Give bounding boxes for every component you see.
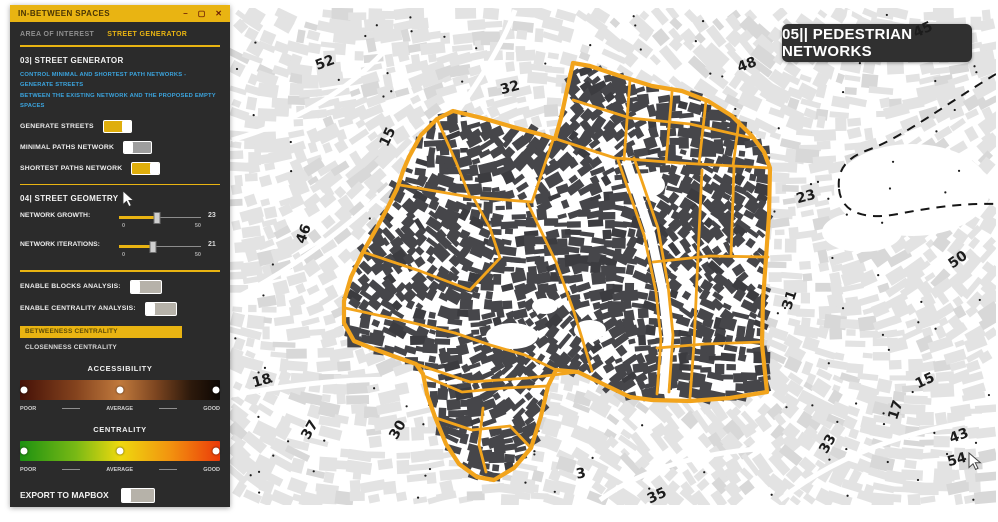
dash-line: [159, 469, 177, 470]
maximize-button[interactable]: ▢: [198, 10, 206, 18]
accessibility-legend-labels: POOR AVERAGE GOOD: [20, 406, 220, 412]
label-poor: POOR: [20, 467, 36, 473]
label-good: GOOD: [203, 467, 220, 473]
section-divider: [20, 45, 220, 47]
section-divider: [20, 184, 220, 186]
label-average: AVERAGE: [106, 406, 133, 412]
accessibility-gradient-bar[interactable]: [20, 380, 220, 400]
blocks-analysis-row: ENABLE BLOCKS ANALYSIS:: [20, 280, 220, 294]
network-growth-label: NETWORK GROWTH:: [20, 212, 90, 219]
toggle-knob: [131, 281, 140, 293]
gradient-handle-left[interactable]: [21, 386, 28, 393]
network-growth-row: NETWORK GROWTH: 0 50 23: [20, 212, 220, 232]
dash-line: [159, 408, 177, 409]
gradient-handle-left[interactable]: [21, 447, 28, 454]
minimal-paths-row: MINIMAL PATHS NETWORK: [20, 141, 220, 154]
toggle-knob: [122, 121, 131, 132]
city-map-canvas: [230, 8, 996, 505]
shortest-paths-toggle[interactable]: [131, 162, 160, 175]
map-title-badge: 05|| PEDESTRIAN NETWORKS: [782, 24, 972, 62]
gradient-handle-right[interactable]: [213, 386, 220, 393]
dash-line: [62, 469, 80, 470]
network-iterations-row: NETWORK ITERATIONS: 0 50 21: [20, 241, 220, 261]
generate-streets-label: GENERATE STREETS: [20, 123, 94, 130]
gradient-handle-right[interactable]: [213, 447, 220, 454]
app-screen: { "window": { "title": "IN-BETWEEN SPACE…: [0, 0, 998, 522]
generate-streets-toggle[interactable]: [103, 120, 132, 133]
blocks-analysis-label: ENABLE BLOCKS ANALYSIS:: [20, 283, 121, 290]
label-average: AVERAGE: [106, 467, 133, 473]
map-viewport[interactable]: 05|| PEDESTRIAN NETWORKS 523215484523465…: [230, 8, 996, 505]
centrality-analysis-label: ENABLE CENTRALITY ANALYSIS:: [20, 305, 136, 312]
minimize-button[interactable]: –: [183, 10, 187, 18]
slider-track: [153, 246, 201, 248]
network-iterations-label: NETWORK ITERATIONS:: [20, 241, 100, 248]
minimal-paths-label: MINIMAL PATHS NETWORK: [20, 144, 114, 151]
network-iterations-slider[interactable]: 0 50: [119, 241, 201, 251]
centrality-analysis-row: ENABLE CENTRALITY ANALYSIS:: [20, 302, 220, 316]
export-mapbox-label: EXPORT TO MAPBOX: [20, 490, 109, 500]
network-growth-slider[interactable]: 0 50: [119, 212, 201, 222]
slider-knob[interactable]: [150, 241, 157, 253]
section-description: CONTROL MINIMAL AND SHORTEST PATH NETWOR…: [20, 70, 220, 112]
toggle-knob: [124, 142, 133, 153]
network-growth-value: 23: [208, 212, 220, 219]
slider-max: 50: [195, 223, 201, 229]
section-heading-street-generator: 03| STREET GENERATOR: [20, 56, 220, 65]
slider-knob[interactable]: [153, 212, 160, 224]
tab-street-generator[interactable]: STREET GENERATOR: [107, 31, 187, 38]
export-mapbox-toggle[interactable]: [121, 488, 155, 503]
tab-area-of-interest[interactable]: AREA OF INTEREST: [20, 31, 94, 38]
control-panel: IN-BETWEEN SPACES – ▢ ✕ AREA OF INTEREST…: [10, 5, 230, 507]
blocks-analysis-toggle[interactable]: [130, 280, 162, 294]
shortest-paths-label: SHORTEST PATHS NETWORK: [20, 165, 122, 172]
toggle-knob: [150, 163, 159, 174]
window-titlebar[interactable]: IN-BETWEEN SPACES – ▢ ✕: [10, 5, 230, 22]
gradient-handle-middle[interactable]: [117, 447, 124, 454]
section-divider: [20, 270, 220, 272]
network-iterations-value: 21: [208, 241, 220, 248]
export-mapbox-row: EXPORT TO MAPBOX: [20, 488, 220, 503]
slider-min: 0: [122, 223, 125, 229]
betweeness-centrality-option-selected[interactable]: BETWEENESS CENTRALITY: [20, 326, 182, 338]
slider-min: 0: [122, 252, 125, 258]
slider-max: 50: [195, 252, 201, 258]
minimal-paths-toggle[interactable]: [123, 141, 152, 154]
closenness-centrality-option[interactable]: CLOSENNESS CENTRALITY: [20, 344, 220, 351]
slider-fill: [119, 245, 153, 248]
centrality-legend-labels: POOR AVERAGE GOOD: [20, 467, 220, 473]
shortest-paths-row: SHORTEST PATHS NETWORK: [20, 162, 220, 175]
label-good: GOOD: [203, 406, 220, 412]
centrality-gradient-bar[interactable]: [20, 441, 220, 461]
tab-bar: AREA OF INTEREST STREET GENERATOR: [20, 31, 220, 38]
close-button[interactable]: ✕: [215, 10, 222, 18]
dash-line: [62, 408, 80, 409]
gradient-handle-middle[interactable]: [117, 386, 124, 393]
toggle-knob: [146, 303, 155, 315]
slider-fill: [119, 216, 157, 219]
window-title: IN-BETWEEN SPACES: [18, 9, 110, 18]
section-heading-street-geometry: 04| STREET GEOMETRY: [20, 194, 220, 203]
centrality-legend-title: CENTRALITY: [20, 425, 220, 434]
centrality-analysis-toggle[interactable]: [145, 302, 177, 316]
generate-streets-row: GENERATE STREETS: [20, 120, 220, 133]
toggle-knob: [122, 489, 131, 502]
accessibility-legend-title: ACCESSIBILITY: [20, 364, 220, 373]
slider-track: [157, 217, 201, 219]
label-poor: POOR: [20, 406, 36, 412]
